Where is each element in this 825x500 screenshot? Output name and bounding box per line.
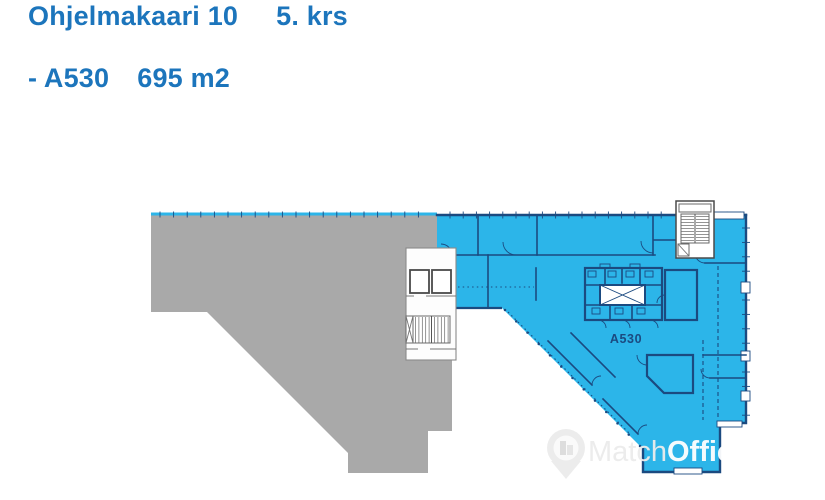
matchoffice-pin-icon xyxy=(547,429,585,479)
floor-plan-drawing: A530 MatchOffice xyxy=(0,0,825,500)
elevator-1 xyxy=(410,270,429,293)
unit-label-a530: A530 xyxy=(610,332,642,346)
elevator-2 xyxy=(432,270,451,293)
floorplan-page: Ohjelmakaari 105. krs - A530695 m2 xyxy=(0,0,825,500)
watermark-text: MatchOffice xyxy=(588,436,749,468)
left-elevator-core xyxy=(406,248,456,360)
top-right-stairwell xyxy=(676,201,714,258)
